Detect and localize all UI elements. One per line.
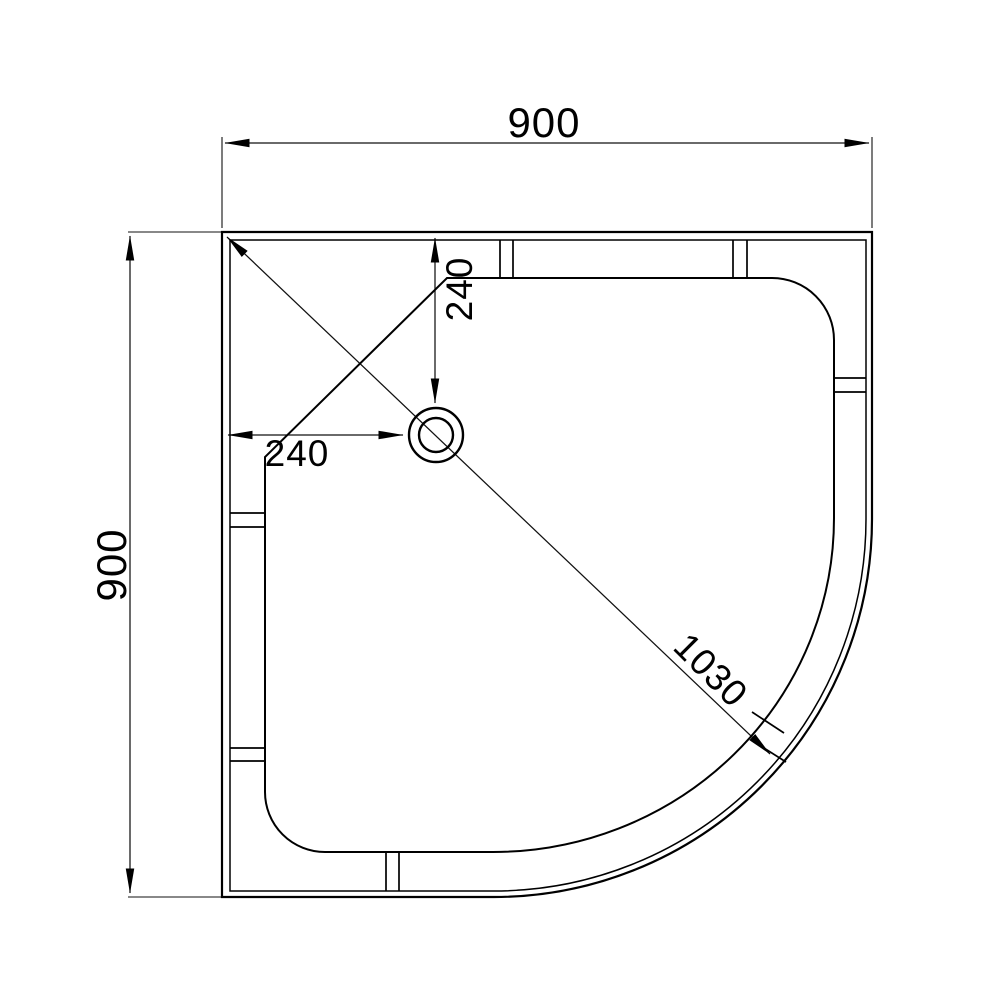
drain-inner-circle <box>419 418 453 452</box>
dim-label-overall-width: 900 <box>507 99 580 146</box>
dim-label-drain-offset-horizontal: 240 <box>265 433 330 474</box>
joint-marks <box>230 240 866 891</box>
tray-outer-edge <box>222 232 872 897</box>
tray-rim-inner-line <box>230 240 866 891</box>
drain-outer-circle <box>409 408 463 462</box>
shower-tray-technical-drawing: 900 900 240 240 1030 <box>0 0 1000 1000</box>
dim-label-drain-offset-vertical: 240 <box>439 257 480 322</box>
drawing-canvas: 900 900 240 240 1030 <box>0 0 1000 1000</box>
tray-basin-edge <box>265 278 834 852</box>
joint-mark-curved-wall <box>753 741 786 762</box>
dim-label-overall-depth: 900 <box>88 528 135 601</box>
dim-label-corner-diagonal: 1030 <box>666 625 756 715</box>
